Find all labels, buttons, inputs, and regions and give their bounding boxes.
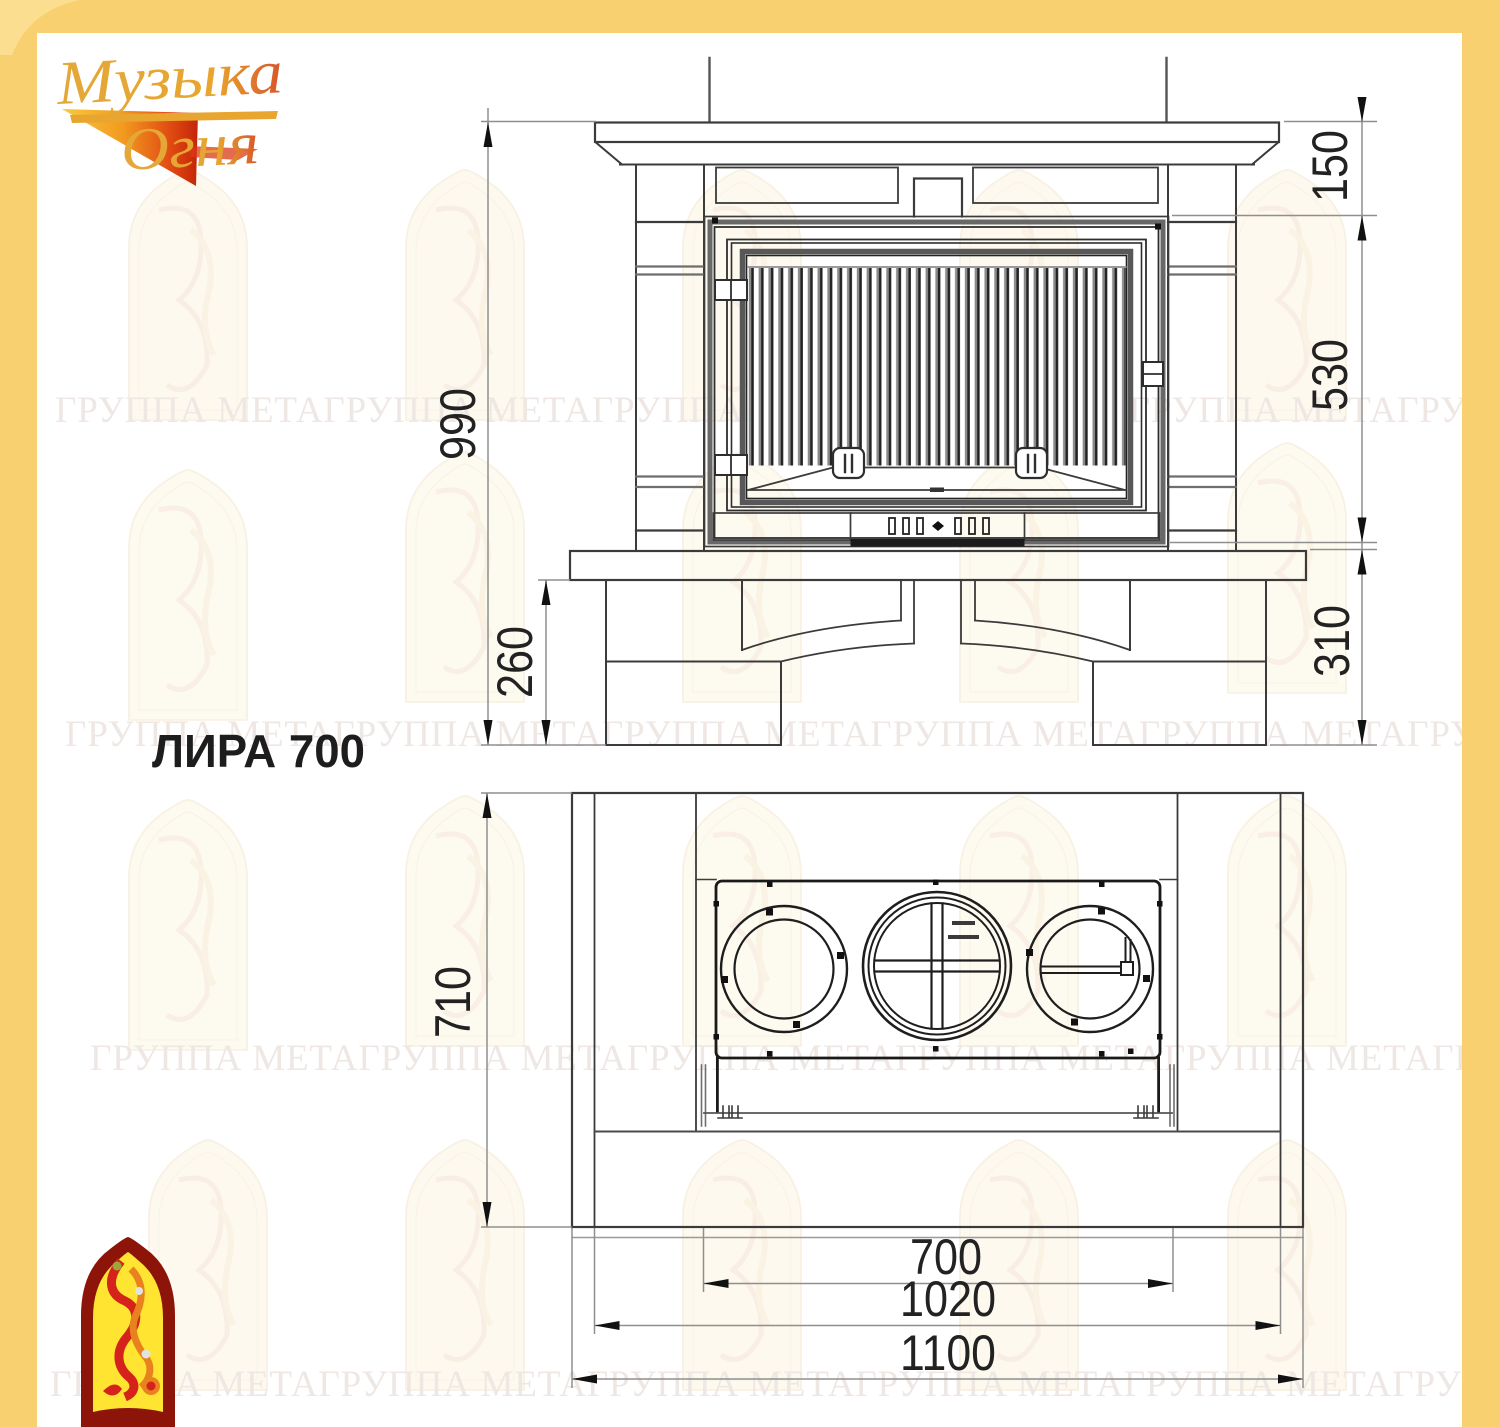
svg-text:530: 530 <box>1302 339 1358 411</box>
svg-text:Огня: Огня <box>119 110 260 183</box>
svg-text:Музыка: Музыка <box>54 38 284 118</box>
svg-text:ЛИРА 700: ЛИРА 700 <box>152 725 365 777</box>
svg-text:ГРУППА МЕТАГРУППА МЕТАГРУППА М: ГРУППА МЕТАГРУППА МЕТАГРУППА МЕТАГРУППА … <box>50 1364 1500 1405</box>
svg-text:710: 710 <box>425 966 481 1038</box>
svg-text:1020: 1020 <box>900 1271 996 1327</box>
svg-text:150: 150 <box>1302 130 1358 202</box>
svg-text:260: 260 <box>487 626 543 698</box>
svg-text:1100: 1100 <box>900 1325 996 1381</box>
svg-text:310: 310 <box>1304 605 1360 677</box>
svg-text:990: 990 <box>430 388 486 460</box>
